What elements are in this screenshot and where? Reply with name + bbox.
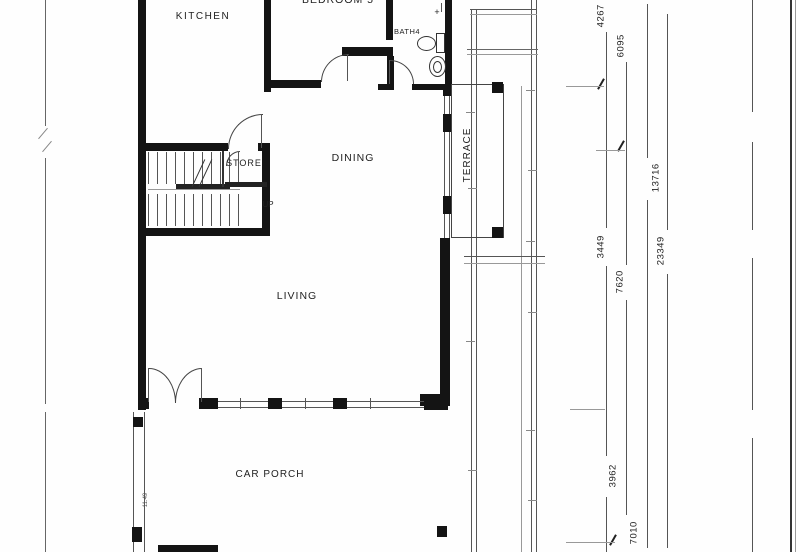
tick-mark [528, 312, 537, 313]
window-mullion [443, 114, 451, 132]
door-leaf [347, 54, 348, 81]
shower-tick [441, 3, 442, 12]
window-line [449, 86, 450, 238]
window-tick [305, 398, 306, 409]
floor-plan: + KITCHEN BEDROOM 5 BATH4 STORE UP DININ… [0, 0, 800, 552]
tick-mark [526, 241, 535, 242]
extension-line [566, 542, 615, 543]
fence-cap-line [467, 54, 538, 55]
dimension-label: 4267 [596, 0, 606, 34]
dimension-line [667, 14, 668, 230]
page-edge-line [790, 0, 792, 552]
toilet-tank-icon [436, 33, 445, 53]
store-divider-wall [222, 151, 224, 187]
extension-line [570, 409, 605, 410]
window-tick [240, 398, 241, 409]
window-tick [370, 398, 371, 409]
small-annotation: 11.49 [143, 487, 149, 513]
page-edge-line [795, 0, 796, 552]
tick-mark [466, 341, 475, 342]
tick-mark [526, 90, 535, 91]
room-label-terrace: TERRACE [463, 125, 473, 185]
wall-segment-stair-bottom [138, 228, 270, 236]
store-floor-bar [225, 182, 267, 187]
boundary-break-mark [42, 141, 52, 152]
window-mullion [443, 86, 451, 96]
room-label-bedroom5: BEDROOM 5 [290, 0, 386, 6]
stair-rail-line [148, 189, 240, 190]
dimension-label: 3962 [608, 458, 618, 494]
extension-line [596, 150, 625, 151]
terrace-column [492, 82, 503, 93]
door-swing-arc [390, 60, 414, 84]
window-mullion [443, 196, 451, 214]
door-leaf [389, 60, 390, 84]
dimension-label: 7010 [629, 515, 639, 551]
boundary-line-left [45, 412, 46, 552]
window-line [444, 86, 445, 238]
stair-treads-lower [148, 194, 240, 226]
door-leaf [261, 114, 262, 148]
extension-line [566, 86, 604, 87]
boundary-line-right [752, 0, 753, 112]
wall-segment-left-exterior [138, 0, 146, 410]
tick-mark [528, 170, 537, 171]
door-swing-arc [149, 368, 176, 403]
carporch-edge-line [144, 412, 145, 552]
column-post [437, 526, 447, 537]
stairs-up-label: UP [258, 201, 278, 209]
wall-segment-bedroom-bottom [271, 80, 321, 88]
fence-jog-line [464, 256, 545, 257]
dimension-line [606, 266, 607, 456]
wall-segment-living-east [440, 238, 450, 396]
dimension-label: 13716 [651, 156, 661, 200]
dimension-label: 6095 [616, 28, 626, 64]
dimension-tick [597, 78, 605, 89]
boundary-line-right [752, 142, 753, 230]
fence-cap-line [470, 9, 537, 10]
dimension-line [626, 62, 627, 265]
room-label-bath: BATH4 [389, 28, 425, 36]
fence-cap-line [470, 14, 537, 15]
tick-mark [528, 500, 537, 501]
wall-segment-bedroom-jog [342, 47, 393, 56]
terrace-outline [451, 84, 504, 238]
boundary-break-mark [38, 128, 48, 139]
door-leaf [148, 368, 149, 402]
wall-segment-bath-right [445, 0, 452, 86]
boundary-line-left [45, 158, 46, 404]
dimension-label: 7620 [615, 264, 625, 300]
dimension-label: 23349 [656, 229, 666, 273]
door-leaf [201, 368, 202, 402]
fence-line [531, 0, 532, 552]
dimension-line [667, 274, 668, 548]
fence-cap-line [467, 49, 538, 50]
room-label-living: LIVING [271, 291, 323, 302]
window-mullion [333, 398, 347, 409]
door-swing-arc [228, 114, 263, 149]
dimension-tick [609, 534, 617, 545]
dimension-line [647, 200, 648, 548]
window-mullion [203, 398, 218, 409]
fence-jog-line [464, 263, 545, 264]
dimension-line [606, 32, 607, 228]
boundary-line-right [752, 438, 753, 552]
wall-segment-hall-top [138, 143, 228, 151]
room-label-car-porch: CAR PORCH [233, 470, 307, 480]
room-label-dining: DINING [327, 153, 379, 164]
boundary-line-right [752, 258, 753, 410]
wall-segment-bath-bottom [378, 84, 390, 90]
gate-bar [158, 545, 218, 552]
boundary-line-left [45, 0, 46, 126]
wall-segment-kitchen-divider [264, 0, 271, 92]
room-label-kitchen: KITCHEN [168, 12, 238, 22]
window-mullion [424, 398, 448, 410]
dimension-line [606, 497, 607, 552]
terrace-column [492, 227, 503, 238]
column-post [132, 527, 142, 542]
column-post [133, 417, 143, 427]
dimension-line [647, 4, 648, 158]
toilet-icon [417, 36, 436, 51]
room-label-store: STORE [224, 159, 264, 168]
window-mullion [268, 398, 282, 409]
fence-line [536, 0, 537, 552]
fence-line [521, 86, 522, 552]
sink-basin-icon [433, 61, 442, 73]
dimension-line [626, 300, 627, 515]
dimension-label: 3449 [596, 229, 606, 265]
door-swing-arc [175, 368, 202, 403]
door-swing-arc [321, 54, 349, 82]
tick-mark [526, 430, 535, 431]
tick-mark [468, 470, 477, 471]
